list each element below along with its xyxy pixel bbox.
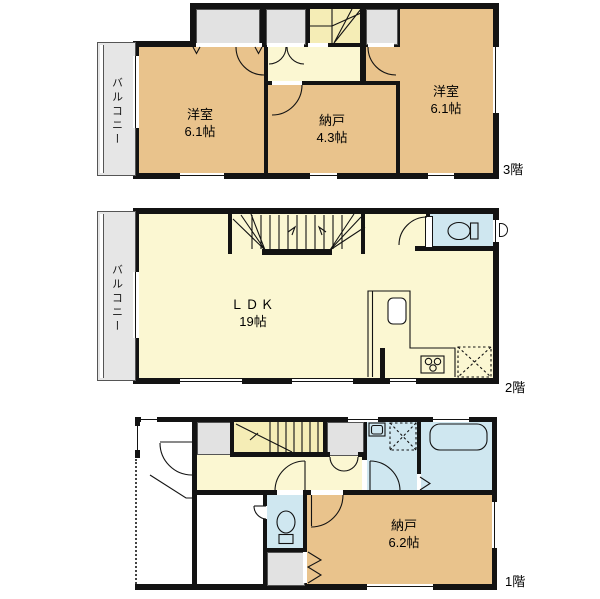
- balcony-3f-label: バルコニー: [109, 77, 125, 147]
- window-2f-south-1: [180, 379, 242, 384]
- toilet-door-leaf-2f: [425, 216, 433, 248]
- room-western-right-3f-entry: [366, 47, 400, 81]
- door-opening-toilet-1f: [263, 506, 267, 519]
- window-3f-east: [493, 47, 499, 113]
- kitchen-wall-stub-2f: [380, 348, 385, 379]
- closet-3f-mid: [266, 9, 306, 45]
- door-opening-3f-storage: [272, 81, 302, 85]
- door-opening-3f-right-room: [368, 43, 394, 47]
- balcony-2f-label: バルコニー: [109, 264, 125, 334]
- window-1f-west: [135, 426, 140, 450]
- door-opening-3f-closet-left: [196, 43, 262, 47]
- hall-wall-south-seg-1f: [358, 452, 367, 457]
- door-opening-storage-1f: [311, 490, 343, 495]
- room-label-ldk-2f: ＬＤＫ 19帖: [213, 296, 293, 330]
- stairs-1f: [234, 422, 323, 453]
- room-label-storage-1f: 納戸 6.2帖: [364, 517, 444, 551]
- window-2f-south-2: [292, 379, 353, 384]
- closet-toilet-1f: [267, 552, 305, 586]
- door-opening-storage-closet-1f: [303, 552, 307, 583]
- room-label-western-right-3f: 洋室 6.1帖: [406, 83, 486, 117]
- balcony-2f-rail: [100, 214, 104, 378]
- approach-boundary-dotted-1f: [135, 459, 137, 584]
- floor-plan: バルコニー 洋室 6.1帖 納戸 4.3帖 洋室 6.1帖: [0, 0, 600, 599]
- floor-label-3f: 3階: [503, 159, 523, 178]
- door-opening-washroom-1f: [362, 460, 367, 490]
- approach-west-1f: [135, 458, 192, 584]
- stairwell-wall-left-2f: [228, 214, 232, 254]
- window-1f-east: [492, 502, 497, 548]
- door-opening-3f-closet-mid: [267, 43, 304, 47]
- door-opening-3f-stairs: [308, 43, 328, 47]
- balcony-2f: バルコニー: [97, 211, 136, 381]
- balcony-3f-rail: [100, 45, 104, 173]
- window-2f-south-3: [390, 379, 416, 384]
- stairwell-wall-right-2f: [361, 214, 365, 254]
- window-1f-north-3: [433, 417, 469, 422]
- bathroom-1f: [421, 422, 492, 490]
- corridor-south-1f: [197, 495, 263, 584]
- window-3f-balcony: [133, 56, 139, 128]
- window-2f-balcony: [133, 272, 139, 338]
- room-label-storage-3f: 納戸 4.3帖: [292, 112, 372, 146]
- room-label-western-left-3f: 洋室 6.1帖: [160, 106, 240, 140]
- closet-entrance-1f: [197, 422, 232, 455]
- window-3f-south-2: [310, 173, 337, 179]
- stairwell-landing-wall-2f: [262, 249, 332, 255]
- window-1f-south: [367, 584, 433, 590]
- toilet-2f: [430, 214, 493, 246]
- vent-toilet-east-2f: [499, 223, 508, 237]
- floor-label-1f: 1階: [505, 571, 525, 590]
- window-1f-north-2: [348, 417, 378, 422]
- window-1f-north-1: [141, 417, 157, 422]
- floor-label-2f: 2階: [505, 377, 525, 396]
- washroom-1f: [367, 422, 417, 490]
- stairs-wall-south-1f: [230, 452, 330, 457]
- balcony-3f: バルコニー: [97, 42, 136, 176]
- window-3f-south-1: [180, 173, 224, 179]
- toilet-1f: [267, 495, 303, 548]
- hall-3f: [268, 47, 360, 81]
- door-opening-hall-1f: [277, 490, 303, 495]
- stairs-3f: [310, 9, 360, 43]
- closet-3f-left: [196, 9, 260, 45]
- door-opening-bathroom-1f: [417, 474, 421, 490]
- closet-3f-right: [366, 9, 398, 45]
- closet-hall-1f: [327, 422, 364, 456]
- window-3f-south-3: [428, 173, 454, 179]
